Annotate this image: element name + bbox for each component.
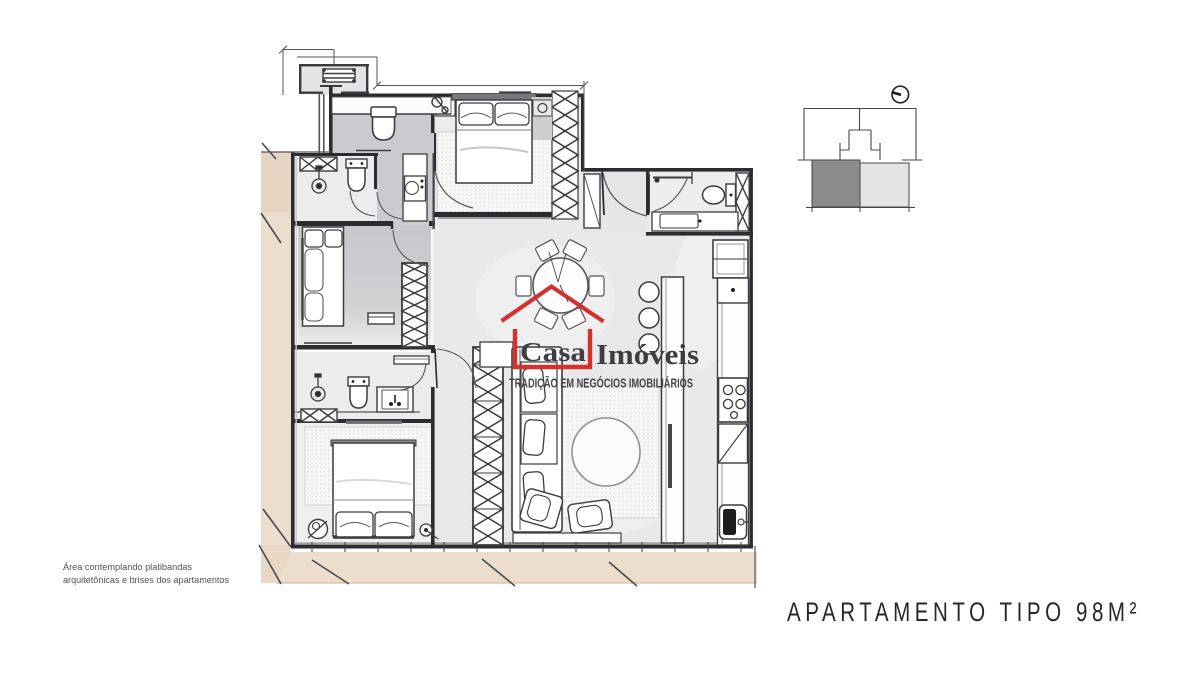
svg-text:Área contemplando platibandas: Área contemplando platibandas: [63, 562, 192, 573]
svg-text:arquitetônicas e brises dos ap: arquitetônicas e brises dos apartamentos: [63, 575, 229, 586]
svg-text:Imóveis: Imóveis: [596, 339, 699, 371]
svg-text:Casa: Casa: [520, 337, 587, 367]
svg-text:TRADIÇÃO EM NEGÓCIOS IMOBILIÁR: TRADIÇÃO EM NEGÓCIOS IMOBILIÁRIOS: [509, 376, 693, 391]
svg-text:APARTAMENTO TIPO 98M²: APARTAMENTO TIPO 98M²: [787, 597, 1141, 627]
